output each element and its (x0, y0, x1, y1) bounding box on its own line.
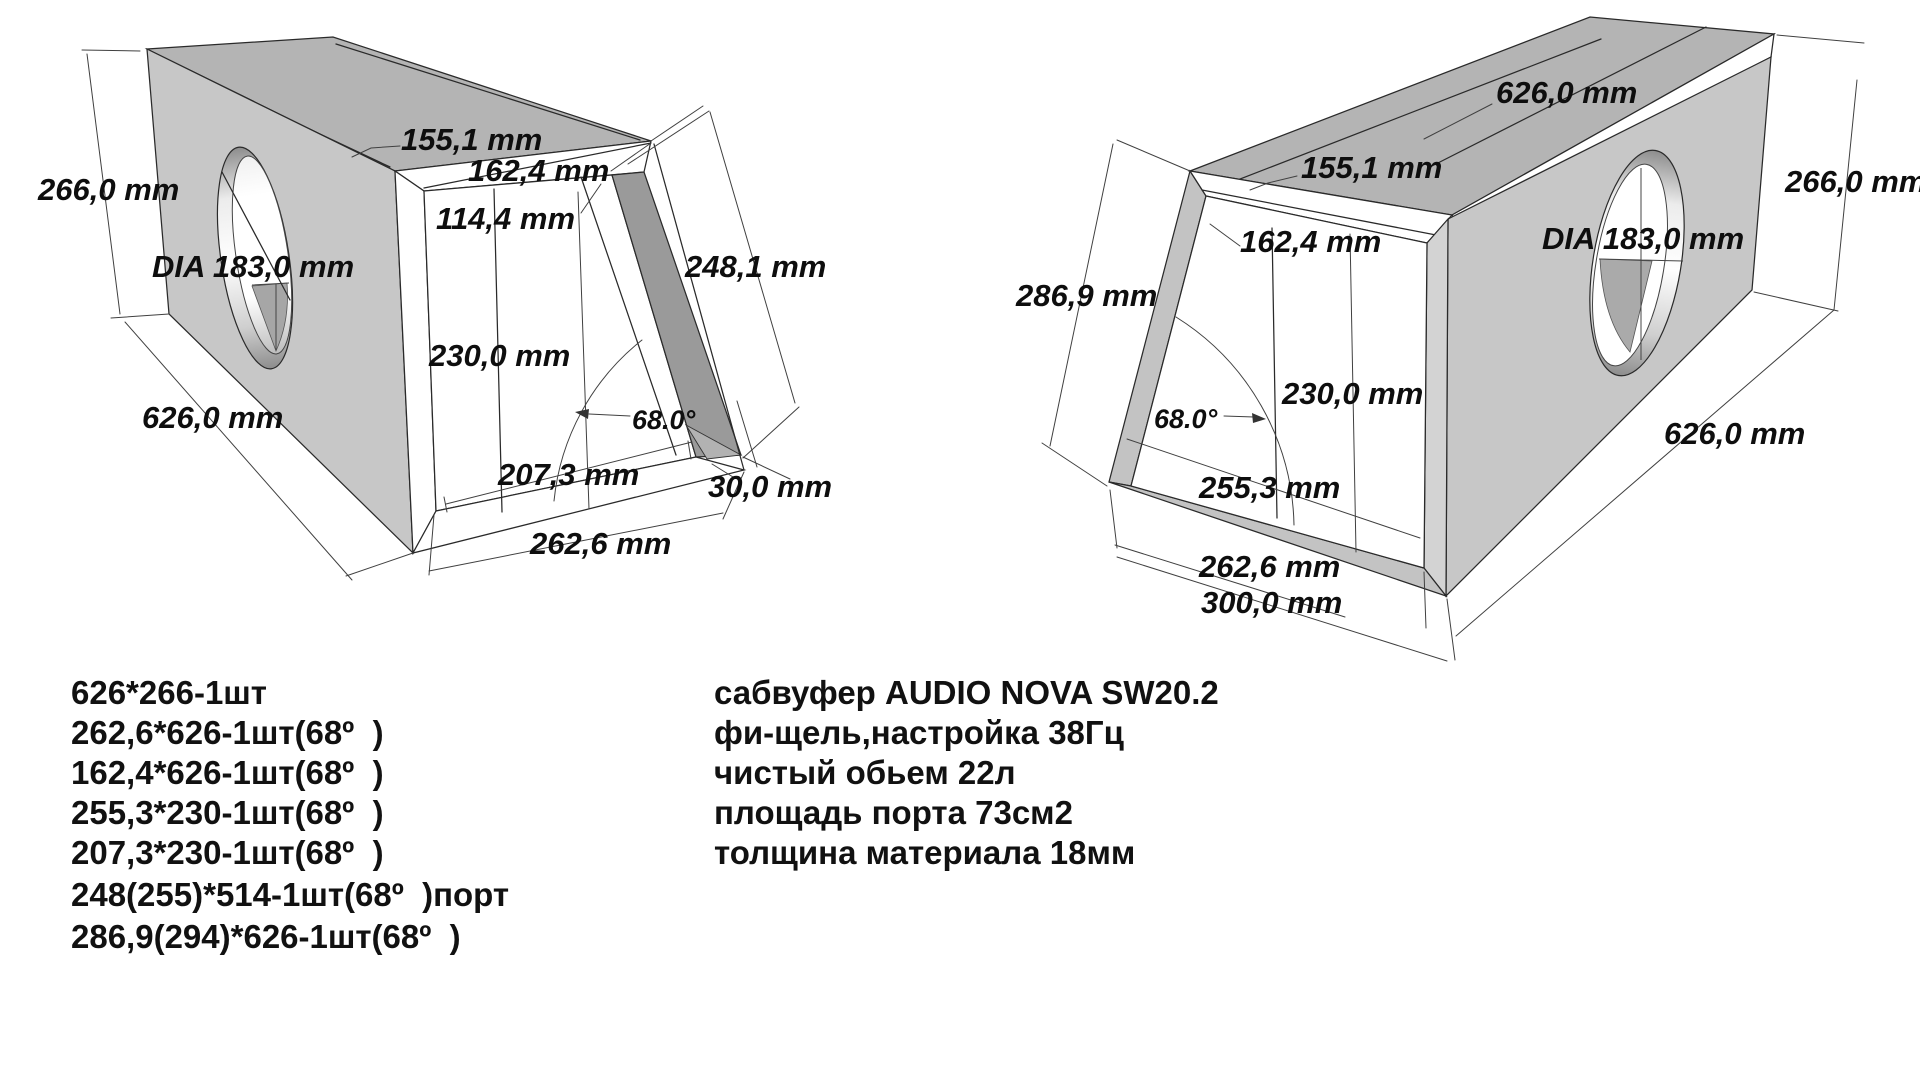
svg-text:286,9(294)*626-1шт(68º ): 286,9(294)*626-1шт(68º ) (71, 918, 461, 955)
svg-text:207,3*230-1шт(68º ): 207,3*230-1шт(68º ) (71, 834, 384, 871)
svg-text:626,0 mm: 626,0 mm (142, 400, 283, 435)
svg-text:262,6 mm: 262,6 mm (529, 526, 671, 561)
svg-text:162,4*626-1шт(68º ): 162,4*626-1шт(68º ) (71, 754, 384, 791)
svg-text:626,0 mm: 626,0 mm (1664, 416, 1805, 451)
svg-text:626,0 mm: 626,0 mm (1496, 75, 1637, 110)
svg-text:266,0 mm: 266,0 mm (37, 172, 179, 207)
svg-text:286,9 mm: 286,9 mm (1015, 278, 1157, 313)
svg-text:255,3 mm: 255,3 mm (1198, 470, 1340, 505)
svg-text:155,1 mm: 155,1 mm (1301, 150, 1442, 185)
svg-text:толщина материала 18мм: толщина материала 18мм (714, 834, 1135, 871)
svg-text:30,0 mm: 30,0 mm (708, 469, 832, 504)
svg-text:230,0 mm: 230,0 mm (1281, 376, 1423, 411)
svg-text:фи-щель,настройка 38Гц: фи-щель,настройка 38Гц (714, 714, 1124, 751)
svg-text:262,6 mm: 262,6 mm (1198, 549, 1340, 584)
svg-text:DIA 183,0 mm: DIA 183,0 mm (1542, 221, 1744, 256)
svg-text:DIA 183,0 mm: DIA 183,0 mm (152, 249, 354, 284)
svg-text:626*266-1шт: 626*266-1шт (71, 674, 267, 711)
svg-text:255,3*230-1шт(68º ): 255,3*230-1шт(68º ) (71, 794, 384, 831)
svg-text:68.0°: 68.0° (632, 405, 696, 435)
svg-text:248(255)*514-1шт(68º )порт: 248(255)*514-1шт(68º )порт (71, 876, 509, 913)
svg-text:155,1 mm: 155,1 mm (401, 122, 542, 157)
svg-text:266,0 mm: 266,0 mm (1784, 164, 1920, 199)
svg-text:площадь порта 73см2: площадь порта 73см2 (714, 794, 1073, 831)
svg-text:300,0 mm: 300,0 mm (1201, 585, 1342, 620)
svg-text:чистый обьем 22л: чистый обьем 22л (714, 754, 1016, 791)
svg-text:262,6*626-1шт(68º ): 262,6*626-1шт(68º ) (71, 714, 384, 751)
svg-text:207,3 mm: 207,3 mm (497, 457, 639, 492)
svg-text:68.0°: 68.0° (1154, 404, 1218, 434)
svg-text:114,4 mm: 114,4 mm (436, 201, 575, 236)
svg-text:162,4 mm: 162,4 mm (468, 153, 609, 188)
svg-text:162,4 mm: 162,4 mm (1240, 224, 1381, 259)
svg-text:сабвуфер AUDIO NOVA SW20.2: сабвуфер AUDIO NOVA SW20.2 (714, 674, 1219, 711)
svg-text:230,0 mm: 230,0 mm (428, 338, 570, 373)
svg-text:248,1 mm: 248,1 mm (684, 249, 826, 284)
